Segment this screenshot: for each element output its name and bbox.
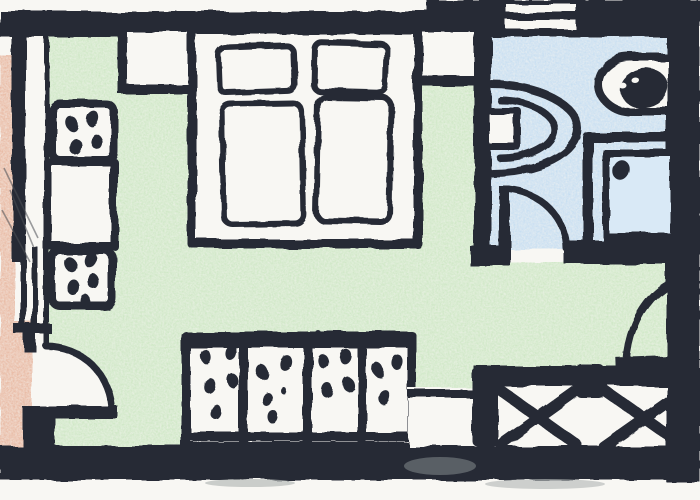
- hob-upper-body: [52, 104, 114, 160]
- burner-dot: [81, 295, 91, 307]
- wardrobe-divider: [303, 344, 312, 444]
- kitchen-hob-upper: [52, 104, 114, 160]
- wardrobe-divider: [357, 344, 366, 444]
- window-stripe-2: [506, 20, 576, 29]
- balcony-door-leaf: [616, 355, 696, 372]
- wardrobe: [186, 336, 412, 446]
- wall-bottom: [0, 446, 700, 480]
- door-frame-line: [32, 247, 38, 327]
- wardrobe-top-bar: [186, 336, 412, 348]
- door-jamb-block: [22, 419, 56, 449]
- railing-post-1: [472, 368, 498, 446]
- pillow-left: [218, 46, 295, 94]
- faucet-dot: [632, 78, 640, 84]
- window-stripe-1: [506, 4, 576, 12]
- faucet-dot: [619, 83, 627, 89]
- wardrobe-divider: [239, 344, 248, 444]
- bottom-smudge: [485, 479, 605, 489]
- toilet-tank: [486, 111, 518, 147]
- door-frame-line: [20, 250, 26, 326]
- duvet-right: [316, 96, 391, 221]
- door-hinge-stem: [24, 334, 36, 352]
- ink-speck: [315, 330, 321, 336]
- wall-left: [12, 30, 26, 262]
- floor-plan-sketch: [0, 0, 700, 500]
- pillow-right: [313, 42, 387, 93]
- wash-basin: [598, 57, 672, 112]
- wardrobe-body: [186, 336, 412, 446]
- duvet-left: [222, 103, 304, 224]
- double-bed: [192, 30, 418, 244]
- bottom-smudge: [205, 479, 295, 487]
- wardrobe-plinth: [186, 432, 412, 441]
- kitchen-hob-lower: [52, 249, 112, 307]
- door-leaf: [22, 406, 118, 419]
- railing-low-bar: [408, 390, 478, 398]
- nightstand-left-top: [124, 32, 196, 88]
- bathroom-door-leaf: [499, 186, 510, 250]
- floor-plan-svg: [0, 0, 700, 500]
- shower: [588, 137, 688, 249]
- door-hinge-bar: [14, 324, 52, 334]
- bottom-smudge: [404, 457, 476, 475]
- kitchen-counter: [48, 162, 114, 246]
